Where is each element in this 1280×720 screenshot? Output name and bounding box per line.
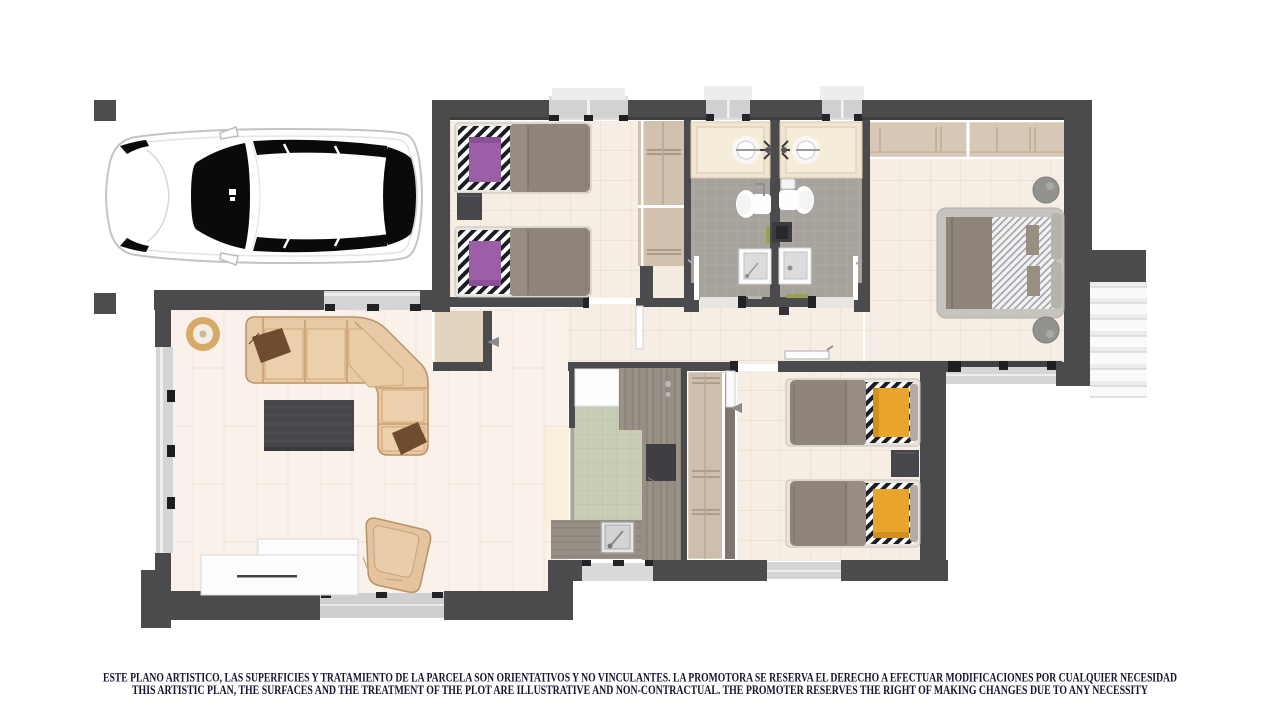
svg-text:THIS ARTISTIC PLAN, THE SURFAC: THIS ARTISTIC PLAN, THE SURFACES AND THE… bbox=[132, 683, 1148, 697]
